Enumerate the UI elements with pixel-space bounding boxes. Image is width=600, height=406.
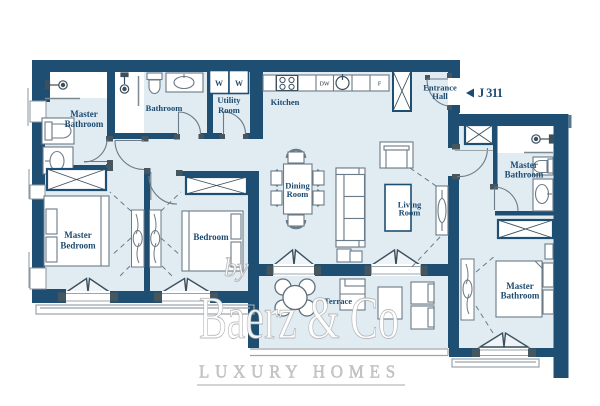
svg-text:Baerz & Co: Baerz & Co: [199, 285, 399, 351]
svg-text:Utility: Utility: [217, 95, 241, 105]
svg-text:Room: Room: [287, 189, 309, 199]
svg-text:Master: Master: [70, 109, 97, 119]
svg-text:Hall: Hall: [432, 91, 448, 101]
svg-text:Master: Master: [506, 281, 533, 291]
svg-text:DW: DW: [320, 82, 330, 88]
svg-text:J 311: J 311: [478, 86, 503, 100]
svg-text:Master: Master: [64, 230, 91, 240]
svg-text:Bathroom: Bathroom: [65, 119, 104, 129]
svg-text:Bathroom: Bathroom: [505, 170, 544, 180]
svg-text:Room: Room: [399, 208, 421, 218]
svg-text:W: W: [215, 79, 223, 88]
svg-text:Kitchen: Kitchen: [271, 97, 300, 107]
svg-text:Master: Master: [510, 160, 537, 170]
svg-text:Bedroom: Bedroom: [60, 241, 96, 251]
svg-text:by: by: [224, 253, 249, 282]
svg-text:Bathroom: Bathroom: [146, 103, 183, 113]
svg-text:Bedroom: Bedroom: [193, 232, 229, 242]
svg-text:LUXURY HOMES: LUXURY HOMES: [199, 362, 401, 382]
svg-text:W: W: [235, 79, 243, 88]
svg-text:Room: Room: [218, 105, 240, 115]
svg-text:Bathroom: Bathroom: [501, 291, 540, 301]
